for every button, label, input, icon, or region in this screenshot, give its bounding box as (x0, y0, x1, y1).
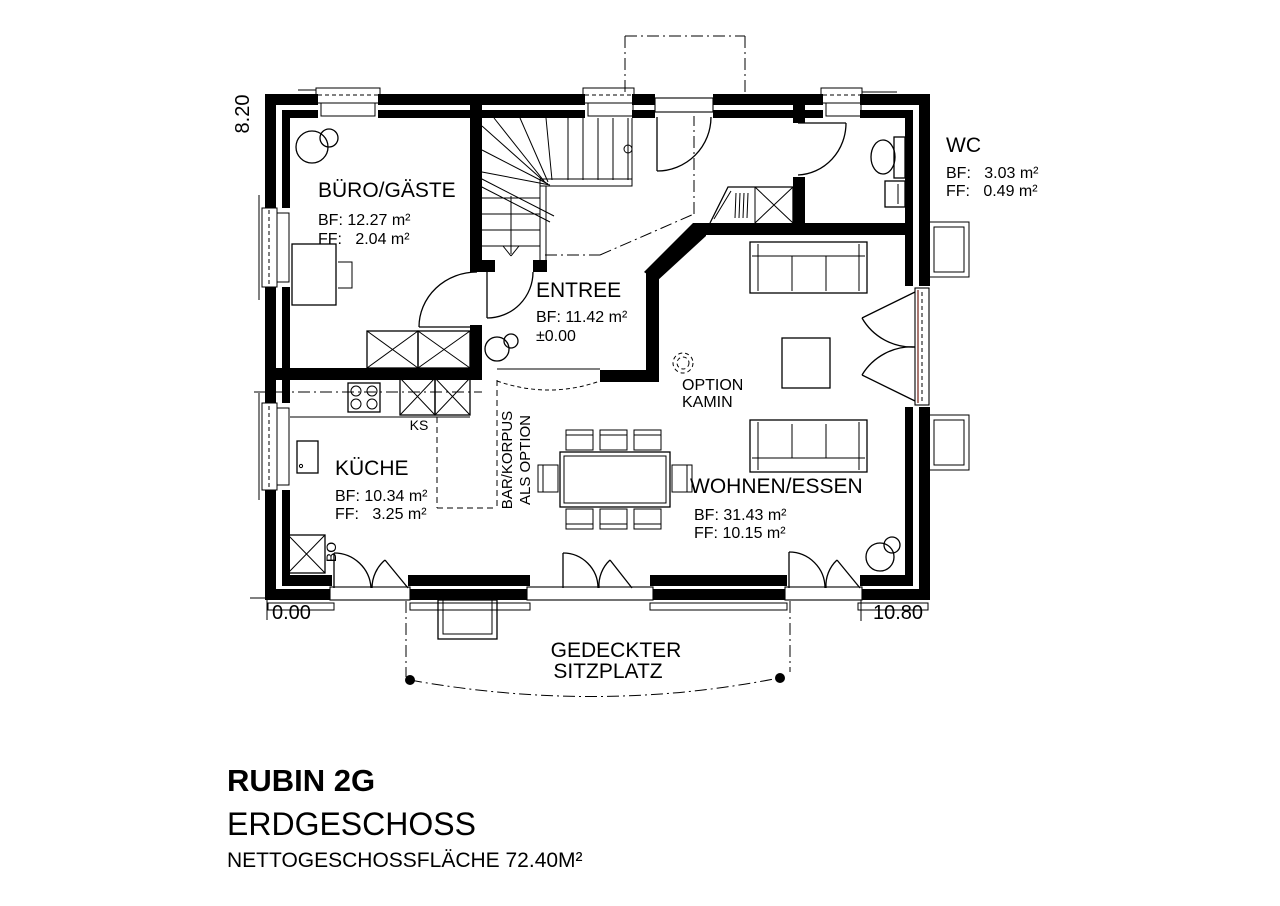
plan-title-floor: ERDGESCHOSS (227, 806, 476, 842)
shutter-box-lower-icon (929, 415, 969, 470)
post-symbol (405, 675, 415, 685)
chair-symbol (338, 262, 352, 288)
room-label-wc: WC (946, 134, 981, 157)
annotation-ks: KS (410, 417, 429, 433)
stair-door-icon (487, 272, 533, 318)
annotation-option: OPTION (682, 377, 743, 394)
room-area-wohnen-ff: FF: 10.15 m² (694, 525, 786, 542)
staircase (476, 118, 632, 262)
living-terrace-door2-icon (785, 552, 862, 600)
floor-plan-drawing: 8.20 0.00 10.80 BÜRO/GÄSTE BF: 12.27 m² … (0, 0, 1280, 906)
plant-symbol (296, 129, 338, 163)
room-area-wc-bf: BF: 3.03 m² (946, 165, 1039, 182)
kitchen-terrace-door-icon (330, 553, 410, 600)
plant-symbol (485, 334, 518, 361)
buero-door-icon (419, 272, 477, 327)
post-symbol (775, 673, 785, 683)
dining-set (538, 430, 692, 529)
front-door-icon (655, 98, 713, 171)
room-label-entree: ENTREE (536, 279, 621, 302)
plan-title-area-note: NETTOGESCHOSSFLÄCHE 72.40M² (227, 849, 583, 872)
window-stair-icon (583, 88, 634, 116)
room-area-entree-bf: BF: 11.42 m² (536, 309, 628, 326)
dimension-width: 10.80 (873, 602, 923, 624)
plan-title-model: RUBIN 2G (227, 763, 375, 798)
tall-unit-icon (435, 378, 470, 415)
room-area-buero-ff: FF: 2.04 m² (318, 231, 410, 248)
bar-option-outline (437, 380, 497, 508)
toilet-icon (871, 137, 905, 178)
room-label-kueche: KÜCHE (335, 457, 409, 480)
annotation-gedeckter: GEDECKTER (551, 639, 682, 662)
room-area-wc-ff: FF: 0.49 m² (946, 183, 1038, 200)
annotation-sitzplatz: SITZPLATZ (553, 660, 662, 683)
window-kueche-left-icon (259, 393, 289, 500)
entree-furniture (485, 187, 793, 361)
sofa-bottom-icon (750, 420, 867, 472)
terrace-door-right-icon (862, 288, 929, 405)
coffee-table-icon (782, 338, 830, 388)
room-label-buero: BÜRO/GÄSTE (318, 179, 456, 202)
annotation-bo: BO (323, 542, 339, 562)
dimension-left-height: 8.20 (232, 95, 254, 134)
shutter-box-upper-icon (929, 222, 969, 277)
plant-symbol (866, 537, 900, 571)
terrace-step-icon (438, 600, 497, 639)
room-area-kueche-ff: FF: 3.25 m² (335, 506, 427, 523)
cooktop-icon (348, 383, 380, 412)
windows (259, 88, 928, 610)
room-area-buero-bf: BF: 12.27 m² (318, 212, 411, 229)
wall-boiler-icon (297, 441, 318, 473)
desk-symbol (292, 244, 336, 305)
floor-plan-page: 8.20 0.00 10.80 BÜRO/GÄSTE BF: 12.27 m² … (0, 0, 1280, 906)
wc-fixtures (871, 137, 905, 207)
sink-icon (885, 181, 905, 207)
fireplace-option-icon (673, 353, 693, 373)
window-buero-left-icon (259, 195, 289, 300)
wardrobe-icon (710, 187, 793, 223)
oven-unit-icon (288, 535, 325, 573)
arch-opening (497, 369, 600, 390)
room-area-wohnen-bf: BF: 31.43 m² (694, 507, 787, 524)
room-label-wohnen: WOHNEN/ESSEN (690, 475, 863, 498)
annotation-bar-line1: BAR/KORPUS (499, 411, 516, 509)
bottom-sill-lines (268, 599, 928, 610)
annotation-kamin: KAMIN (682, 394, 733, 411)
room-area-kueche-bf: BF: 10.34 m² (335, 488, 428, 505)
fridge-unit-icon (400, 378, 435, 415)
room-level-entree: ±0.00 (536, 328, 576, 345)
buero-cabinets (367, 331, 470, 368)
title-block: RUBIN 2G ERDGESCHOSS NETTOGESCHOSSFLÄCHE… (227, 763, 583, 872)
sofa-top-icon (750, 242, 867, 293)
buero-furniture (292, 129, 470, 368)
living-terrace-door1-icon (527, 553, 653, 600)
annotation-bar-line2: ALS OPTION (517, 415, 534, 505)
dimension-origin: 0.00 (272, 602, 311, 624)
wc-door-icon (798, 123, 846, 175)
